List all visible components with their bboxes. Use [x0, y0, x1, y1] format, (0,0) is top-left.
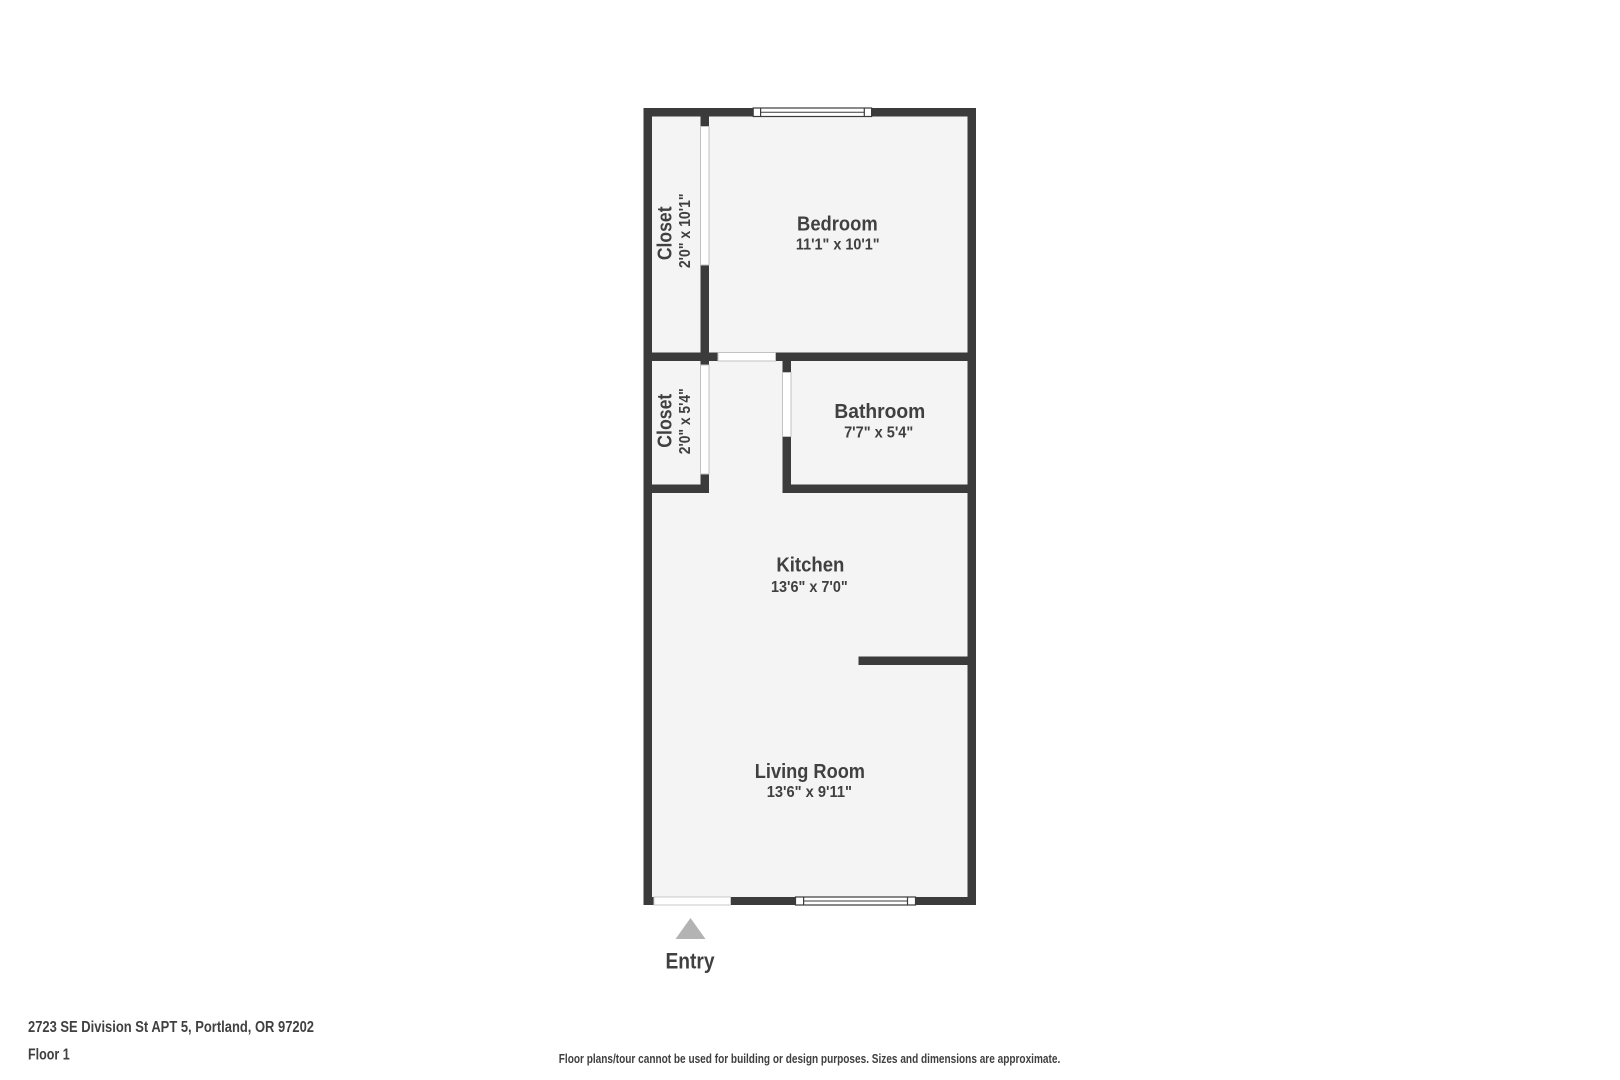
svg-text:Kitchen: Kitchen	[776, 554, 844, 576]
svg-text:Entry: Entry	[665, 949, 715, 974]
svg-text:Floor plans/tour cannot be use: Floor plans/tour cannot be used for buil…	[559, 1052, 1061, 1066]
svg-text:Floor 1: Floor 1	[28, 1047, 70, 1064]
svg-text:2723 SE Division St APT 5, Por: 2723 SE Division St APT 5, Portland, OR …	[28, 1019, 314, 1036]
svg-text:7'7" x 5'4": 7'7" x 5'4"	[844, 424, 913, 441]
svg-text:Bathroom: Bathroom	[834, 401, 925, 423]
svg-text:Closet: Closet	[655, 393, 677, 447]
svg-text:Living Room: Living Room	[755, 761, 865, 783]
svg-text:Bedroom: Bedroom	[797, 214, 878, 236]
svg-text:Closet: Closet	[655, 206, 677, 260]
svg-text:2'0" x 10'1": 2'0" x 10'1"	[677, 193, 694, 268]
svg-text:2'0" x 5'4": 2'0" x 5'4"	[677, 388, 694, 454]
svg-text:11'1" x 10'1": 11'1" x 10'1"	[796, 236, 880, 253]
svg-text:13'6" x 7'0": 13'6" x 7'0"	[771, 579, 848, 596]
svg-text:13'6" x 9'11": 13'6" x 9'11"	[767, 784, 852, 801]
